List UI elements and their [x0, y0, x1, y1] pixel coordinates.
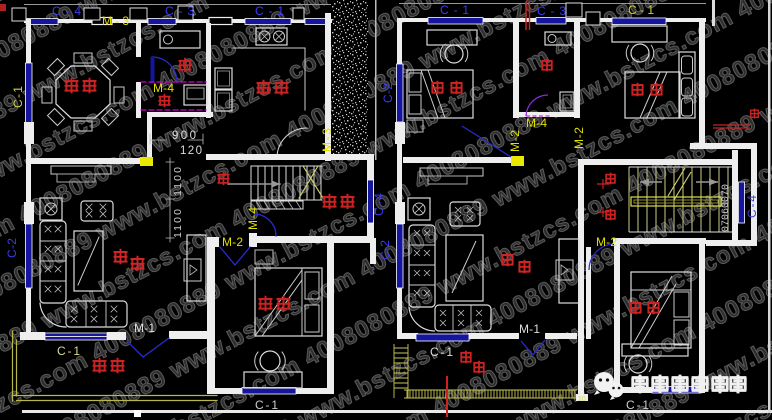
- svg-text:C-1: C-1: [57, 344, 80, 358]
- svg-text:C-3: C-3: [165, 4, 194, 18]
- svg-text:C-1: C-1: [11, 86, 25, 108]
- svg-text:C-1: C-1: [440, 3, 469, 17]
- svg-text:C-4: C-4: [745, 195, 759, 218]
- svg-text:C-1: C-1: [628, 3, 654, 17]
- svg-text:07060070: 07060070: [721, 184, 732, 232]
- svg-text:C-4: C-4: [52, 4, 81, 18]
- svg-text:1100: 1100: [172, 209, 184, 238]
- svg-text:C-3: C-3: [537, 4, 566, 18]
- svg-text:M-2: M-2: [596, 235, 617, 249]
- svg-text:M-1: M-1: [519, 322, 540, 336]
- svg-text:M-2: M-2: [508, 130, 522, 152]
- svg-text:M-3: M-3: [102, 14, 129, 28]
- svg-text:C-2: C-2: [381, 83, 395, 103]
- svg-text:C-1: C-1: [626, 398, 649, 412]
- svg-text:M-4: M-4: [246, 207, 260, 230]
- svg-text:C-1: C-1: [255, 4, 284, 18]
- svg-text:M-3: M-3: [320, 128, 334, 152]
- svg-text:M-2: M-2: [222, 235, 243, 249]
- svg-text:M-1: M-1: [134, 321, 155, 335]
- svg-text:10: 10: [578, 396, 586, 403]
- svg-text:120: 120: [180, 145, 202, 157]
- svg-text:1100: 1100: [172, 167, 184, 196]
- svg-text:900: 900: [172, 130, 196, 142]
- svg-text:C-4: C-4: [372, 193, 386, 216]
- svg-text:M-2: M-2: [572, 127, 586, 149]
- svg-text:C-2: C-2: [378, 240, 392, 260]
- svg-text:C-1: C-1: [430, 345, 453, 359]
- svg-text:M-4: M-4: [153, 81, 174, 95]
- svg-text:C-1: C-1: [255, 398, 278, 412]
- svg-text:M-4: M-4: [526, 116, 547, 130]
- svg-text:C-2: C-2: [5, 238, 19, 258]
